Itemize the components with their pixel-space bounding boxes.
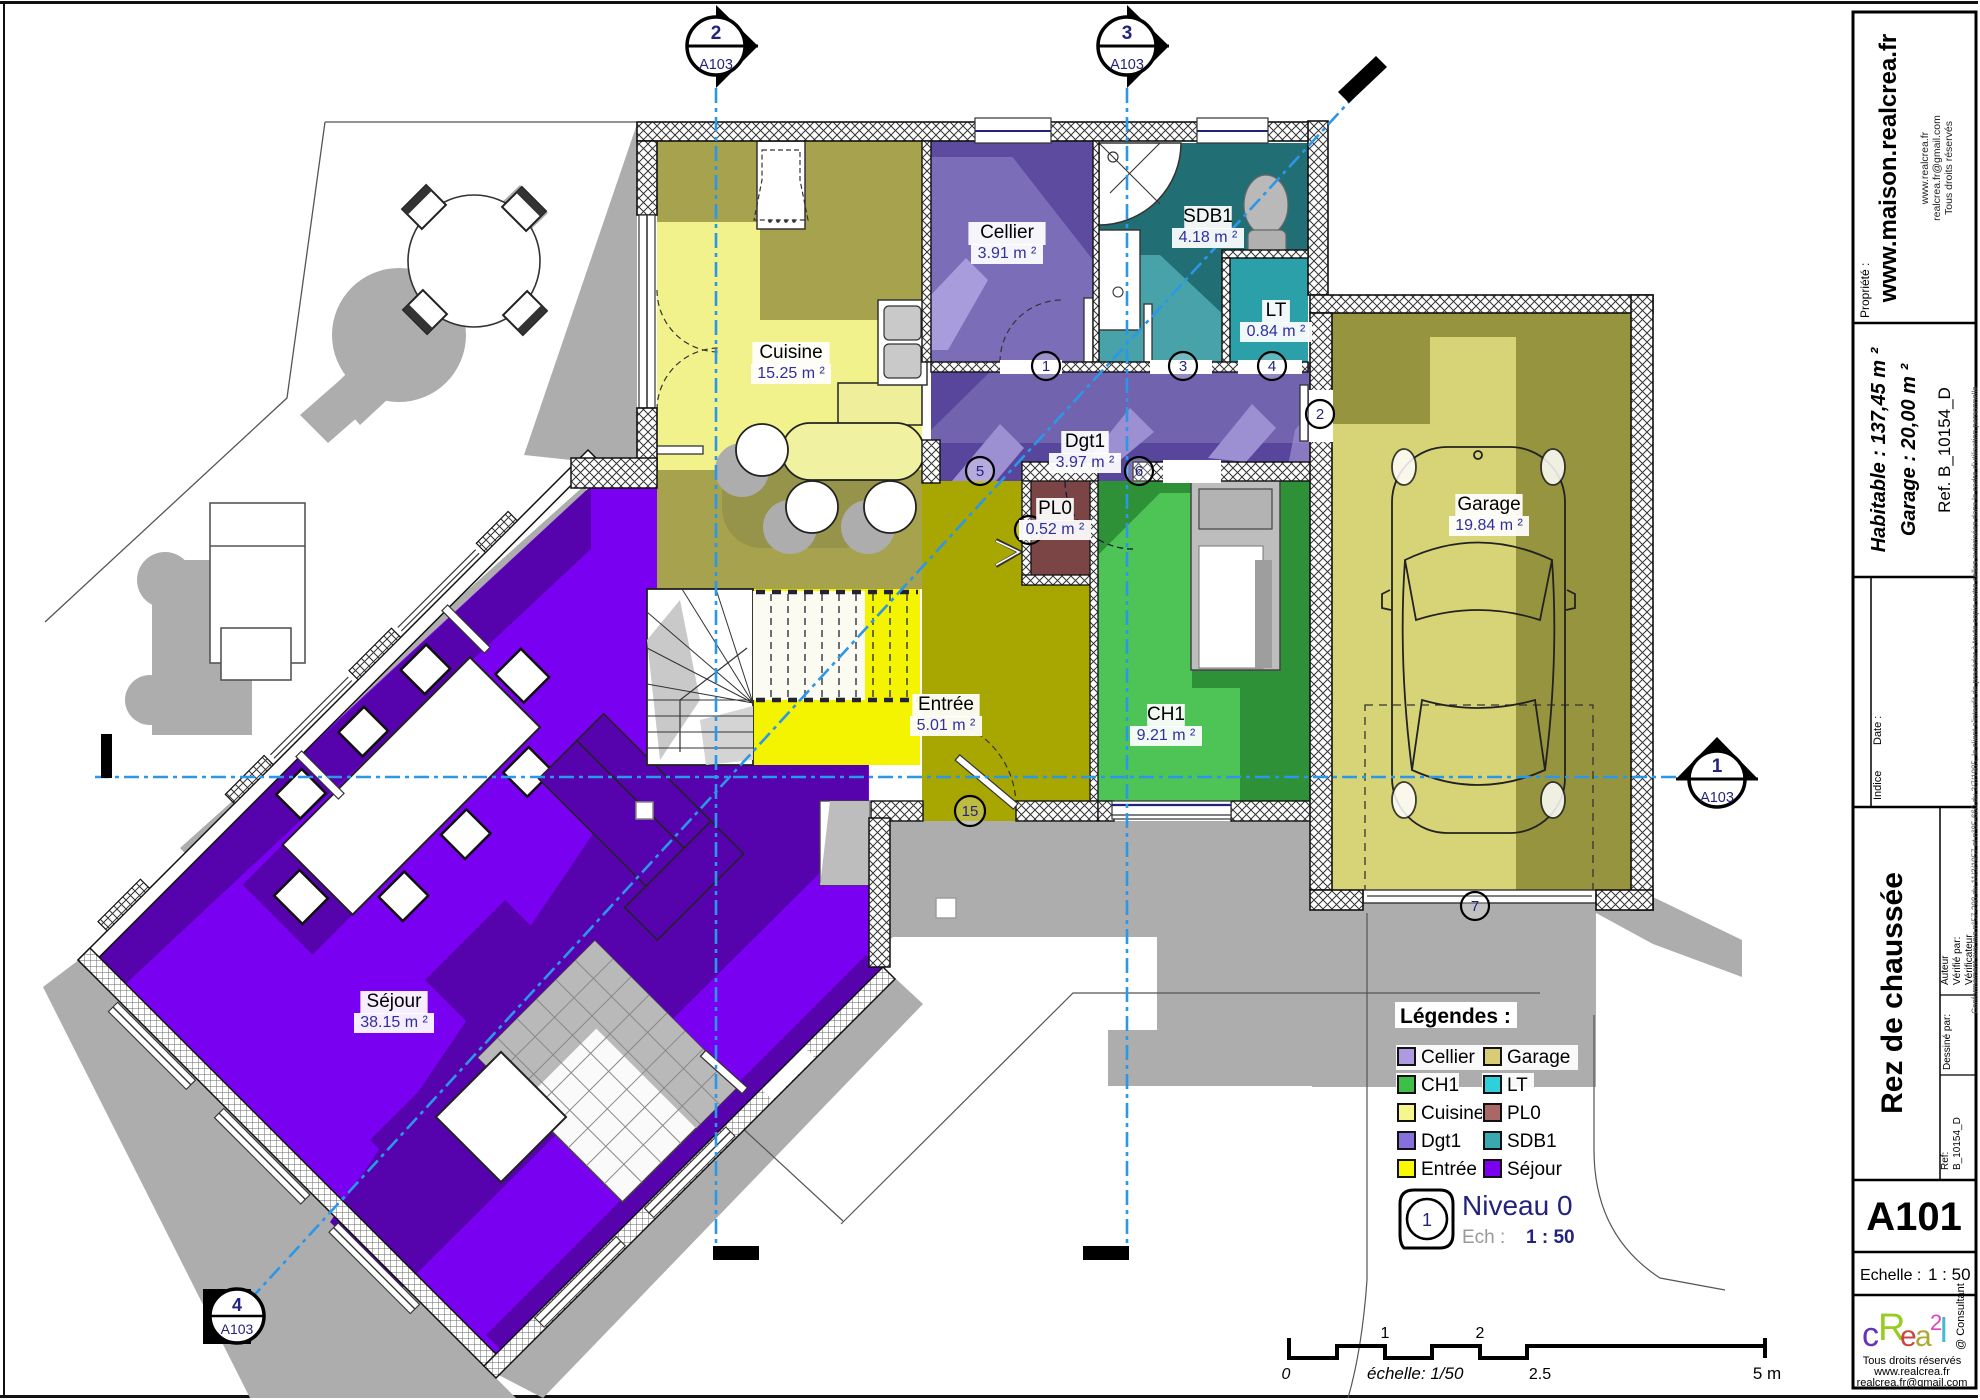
svg-text:Séjour: Séjour [1507,1159,1563,1180]
svg-text:3: 3 [1122,23,1133,44]
svg-text:Date :: Date : [1872,716,1884,745]
svg-text:échelle: 1/50: échelle: 1/50 [1367,1364,1464,1383]
svg-text:www.maison.realcrea.fr: www.maison.realcrea.fr [1875,34,1902,304]
svg-text:1 : 50: 1 : 50 [1526,1227,1575,1248]
svg-text:4: 4 [1268,358,1276,375]
svg-text:LT: LT [1507,1075,1528,1096]
svg-text:0: 0 [1282,1366,1291,1383]
svg-text:Tous droits réservés: Tous droits réservés [1943,121,1955,215]
svg-text:A103: A103 [699,57,733,73]
svg-text:www.realcrea.fr: www.realcrea.fr [1919,131,1931,205]
svg-text:Cuisine: Cuisine [1421,1103,1484,1124]
svg-text:0.52 m ²: 0.52 m ² [1026,521,1085,538]
svg-text:@ Consultant: @ Consultant [1955,1283,1967,1350]
svg-text:CH1: CH1 [1147,704,1185,725]
svg-text:Rez de chaussée: Rez de chaussée [1876,872,1909,1114]
svg-text:Echelle :: Echelle : [1860,1267,1921,1284]
svg-text:PL0: PL0 [1507,1103,1541,1124]
svg-text:Séjour: Séjour [367,991,423,1012]
svg-text:1: 1 [1042,358,1050,375]
svg-text:3: 3 [1179,358,1187,375]
svg-text:Propriété :: Propriété : [1858,263,1872,318]
svg-text:Entrée: Entrée [1421,1159,1477,1180]
svg-text:Ref. B_10154_D: Ref. B_10154_D [1935,387,1954,513]
svg-text:A103: A103 [1110,57,1144,73]
svg-text:3.91 m ²: 3.91 m ² [978,245,1037,262]
svg-text:Légendes :: Légendes : [1400,1005,1511,1028]
svg-text:realcrea.fr@gmail.com: realcrea.fr@gmail.com [1931,115,1943,221]
svg-text:A103: A103 [221,1321,254,1337]
svg-text:1: 1 [1422,1210,1432,1230]
svg-text:4: 4 [232,1295,242,1315]
svg-text:SDB1: SDB1 [1183,206,1233,227]
svg-text:l: l [1940,1312,1948,1350]
svg-text:19.84 m ²: 19.84 m ² [1455,517,1523,534]
svg-text:PL0: PL0 [1038,498,1072,519]
svg-text:Ref:: Ref: [1940,1152,1951,1170]
svg-text:4.18 m ²: 4.18 m ² [1179,229,1238,246]
svg-text:5: 5 [976,463,984,480]
svg-text:Auteur: Auteur [1940,955,1951,985]
svg-text:15.25 m ²: 15.25 m ² [757,365,825,382]
svg-text:Conformément aux lois n°57-298: Conformément aux lois n°57-298 du 11/3/1… [1971,386,1980,1014]
svg-text:1: 1 [1381,1325,1390,1342]
svg-text:A101: A101 [1866,1195,1962,1239]
svg-text:6: 6 [1135,463,1143,480]
svg-text:Vérifié par:: Vérifié par: [1952,937,1963,985]
svg-text:Cuisine: Cuisine [759,342,822,363]
svg-text:B_10154_D: B_10154_D [1952,1117,1963,1170]
svg-text:Cellier: Cellier [1421,1047,1476,1068]
svg-text:Niveau 0: Niveau 0 [1462,1190,1573,1221]
svg-text:0.84 m ²: 0.84 m ² [1247,323,1306,340]
svg-text:Entrée: Entrée [918,694,974,715]
svg-text:Habitable : 137,45 m ²: Habitable : 137,45 m ² [1868,346,1890,552]
svg-text:5.01 m ²: 5.01 m ² [917,717,976,734]
svg-text:2: 2 [1316,406,1324,423]
svg-text:Garage: Garage [1507,1047,1570,1068]
svg-text:1: 1 [1712,756,1723,777]
svg-text:LT: LT [1266,300,1287,321]
svg-text:Dgt1: Dgt1 [1421,1131,1461,1152]
svg-text:SDB1: SDB1 [1507,1131,1557,1152]
svg-text:2: 2 [711,23,722,44]
svg-text:realcrea.fr@gmail.com: realcrea.fr@gmail.com [1857,1377,1968,1389]
svg-text:Dessiné par:: Dessiné par: [1942,1014,1953,1070]
svg-text:Dgt1: Dgt1 [1065,431,1105,452]
svg-text:38.15 m ²: 38.15 m ² [360,1014,428,1031]
svg-text:2: 2 [1476,1325,1485,1342]
svg-text:Indice: Indice [1872,771,1884,800]
svg-text:Cellier: Cellier [980,222,1035,243]
svg-text:15: 15 [962,803,979,820]
svg-text:c: c [1862,1316,1879,1354]
svg-text:5 m: 5 m [1753,1364,1781,1383]
svg-text:7: 7 [1471,898,1479,915]
svg-text:A103: A103 [1700,790,1734,806]
svg-text:1 : 50: 1 : 50 [1928,1265,1971,1284]
svg-text:Garage : 20,00 m ²: Garage : 20,00 m ² [1898,363,1920,537]
svg-text:Garage: Garage [1457,494,1520,515]
svg-text:2.5: 2.5 [1529,1366,1551,1383]
svg-text:Ech :: Ech : [1462,1227,1505,1248]
svg-text:3.97 m ²: 3.97 m ² [1056,454,1115,471]
svg-text:9.21 m ²: 9.21 m ² [1137,727,1196,744]
svg-text:CH1: CH1 [1421,1075,1459,1096]
